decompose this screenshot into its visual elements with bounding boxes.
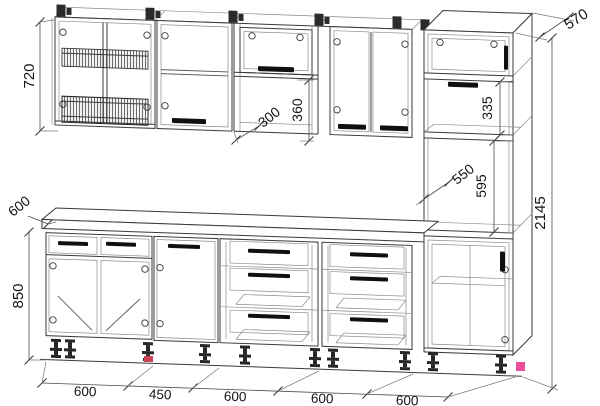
dim-label-335: 335 [479,96,495,120]
tall-mid-handle [448,82,478,88]
dim-label-width-2: 450 [149,387,172,403]
kitchen-technical-drawing: 720 600 850 300 360 335 [0,0,600,406]
dim-bottom-widths: 600 450 600 600 600 [38,362,516,406]
bracket-icon [57,5,71,16]
bracket-icon [146,8,160,19]
drawer-base-cabinet-1 [220,239,318,346]
foot-icon [399,351,411,370]
floor-line [40,359,522,376]
wall-cabinet-double-door [330,27,412,138]
dim-label-360: 360 [289,98,305,122]
dim-label-600-depth: 600 [5,192,33,219]
tall-bottom-door-handle [500,252,505,272]
door-handle [338,124,366,130]
drawer-base-cabinet-2 [322,242,412,349]
foot-icon [309,348,321,367]
pink-marker [516,362,525,371]
dim-label-width-4: 600 [311,391,334,406]
tall-top-door-handle [504,46,508,70]
bracket-icon [393,17,429,30]
door-handle [380,125,408,131]
bracket-icon [229,11,243,22]
dim-wall-niche-height: 360 [289,76,314,146]
dim-base-height: 850 [10,228,46,365]
wall-cabinet-dish-rack [52,17,155,129]
dim-label-width-3: 600 [224,389,247,405]
dish-rack-upper [62,48,148,69]
dim-label-850: 850 [10,283,27,308]
red-marker [144,356,153,362]
sink-base-cabinet [46,233,152,340]
dish-rack-lower [62,96,148,125]
dim-label-595: 595 [473,174,489,198]
foot-icon [327,348,339,367]
dim-wall-cabinet-height: 720 [21,18,58,136]
base-cabinet-450 [154,236,218,342]
foot-icon [495,354,507,373]
drawing-canvas: 720 600 850 300 360 335 [0,0,600,406]
dim-label-570: 570 [561,5,591,33]
foot-icon [199,344,211,363]
wall-cabinet-single-door [157,20,232,131]
dim-label-720: 720 [21,63,38,88]
foot-icon [427,352,439,371]
dim-label-2145: 2145 [532,196,549,229]
foot-icon [64,339,76,358]
dim-label-width-5: 600 [396,393,419,406]
foot-icon [50,339,62,358]
foot-icon [239,345,251,364]
dim-label-width-1: 600 [74,384,97,400]
dim-counter-depth: 600 [5,192,56,228]
bracket-icon [315,14,329,25]
